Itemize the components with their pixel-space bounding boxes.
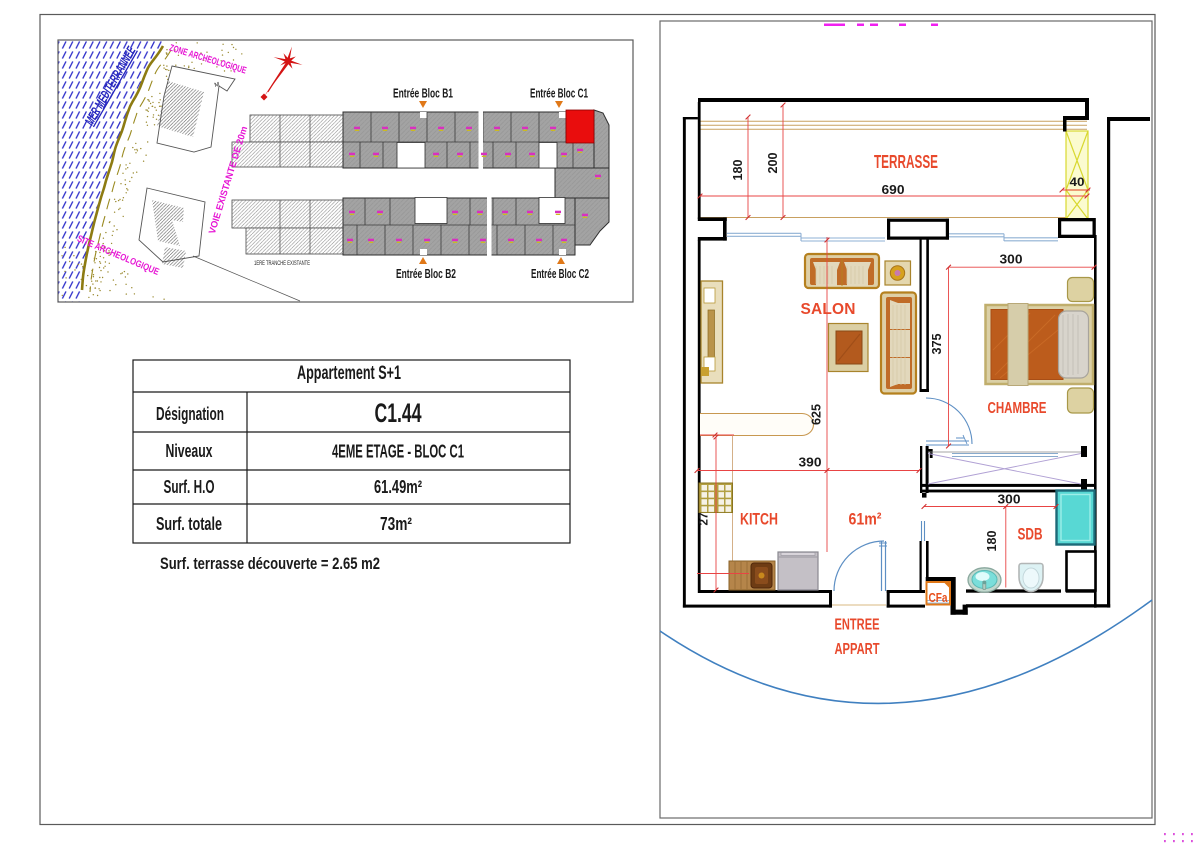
svg-text:61.49m²: 61.49m² — [374, 477, 422, 497]
svg-text:Désignation: Désignation — [156, 404, 224, 424]
svg-text:SALON: SALON — [801, 301, 856, 318]
svg-text:625: 625 — [810, 404, 824, 425]
svg-text:CHAMBRE: CHAMBRE — [988, 400, 1047, 417]
svg-text:C1.44: C1.44 — [375, 398, 422, 428]
svg-text:Appartement S+1: Appartement S+1 — [297, 363, 401, 384]
svg-text:180: 180 — [985, 530, 999, 551]
svg-text:ENTREE: ENTREE — [835, 617, 880, 634]
svg-text:Entrée Bloc B2: Entrée Bloc B2 — [396, 266, 456, 281]
svg-text:1ERE TRANCHE EXISTANTE: 1ERE TRANCHE EXISTANTE — [254, 261, 310, 267]
svg-text:APPART: APPART — [835, 641, 880, 658]
svg-text:Surf. H.O: Surf. H.O — [164, 477, 215, 497]
svg-text:TERRASSE: TERRASSE — [874, 152, 938, 172]
svg-text:SDB: SDB — [1018, 526, 1043, 544]
svg-text:27: 27 — [697, 512, 711, 525]
svg-text:390: 390 — [799, 455, 822, 470]
svg-text:300: 300 — [1000, 252, 1023, 267]
svg-text:4EME ETAGE - BLOC C1: 4EME ETAGE - BLOC C1 — [332, 442, 464, 462]
svg-text:Entrée Bloc C2: Entrée Bloc C2 — [531, 266, 589, 281]
svg-text:Entrée Bloc B1: Entrée Bloc B1 — [393, 86, 453, 101]
svg-text:375: 375 — [930, 333, 944, 354]
svg-text:200: 200 — [766, 152, 780, 173]
svg-text:CFa: CFa — [929, 590, 949, 605]
svg-text:Entrée Bloc C1: Entrée Bloc C1 — [530, 86, 588, 101]
svg-text:690: 690 — [882, 182, 905, 197]
svg-text:73m²: 73m² — [380, 514, 412, 534]
svg-text:180: 180 — [731, 159, 745, 180]
svg-text:Surf. totale: Surf. totale — [156, 514, 222, 534]
svg-text:KITCH: KITCH — [740, 511, 778, 529]
svg-text:Niveaux: Niveaux — [166, 441, 213, 461]
svg-text:40: 40 — [1070, 175, 1085, 189]
svg-text:61m²: 61m² — [849, 511, 882, 529]
svg-text:Surf. terrasse découverte = 2.: Surf. terrasse découverte = 2.65 m2 — [160, 555, 380, 573]
svg-text:300: 300 — [998, 492, 1021, 507]
